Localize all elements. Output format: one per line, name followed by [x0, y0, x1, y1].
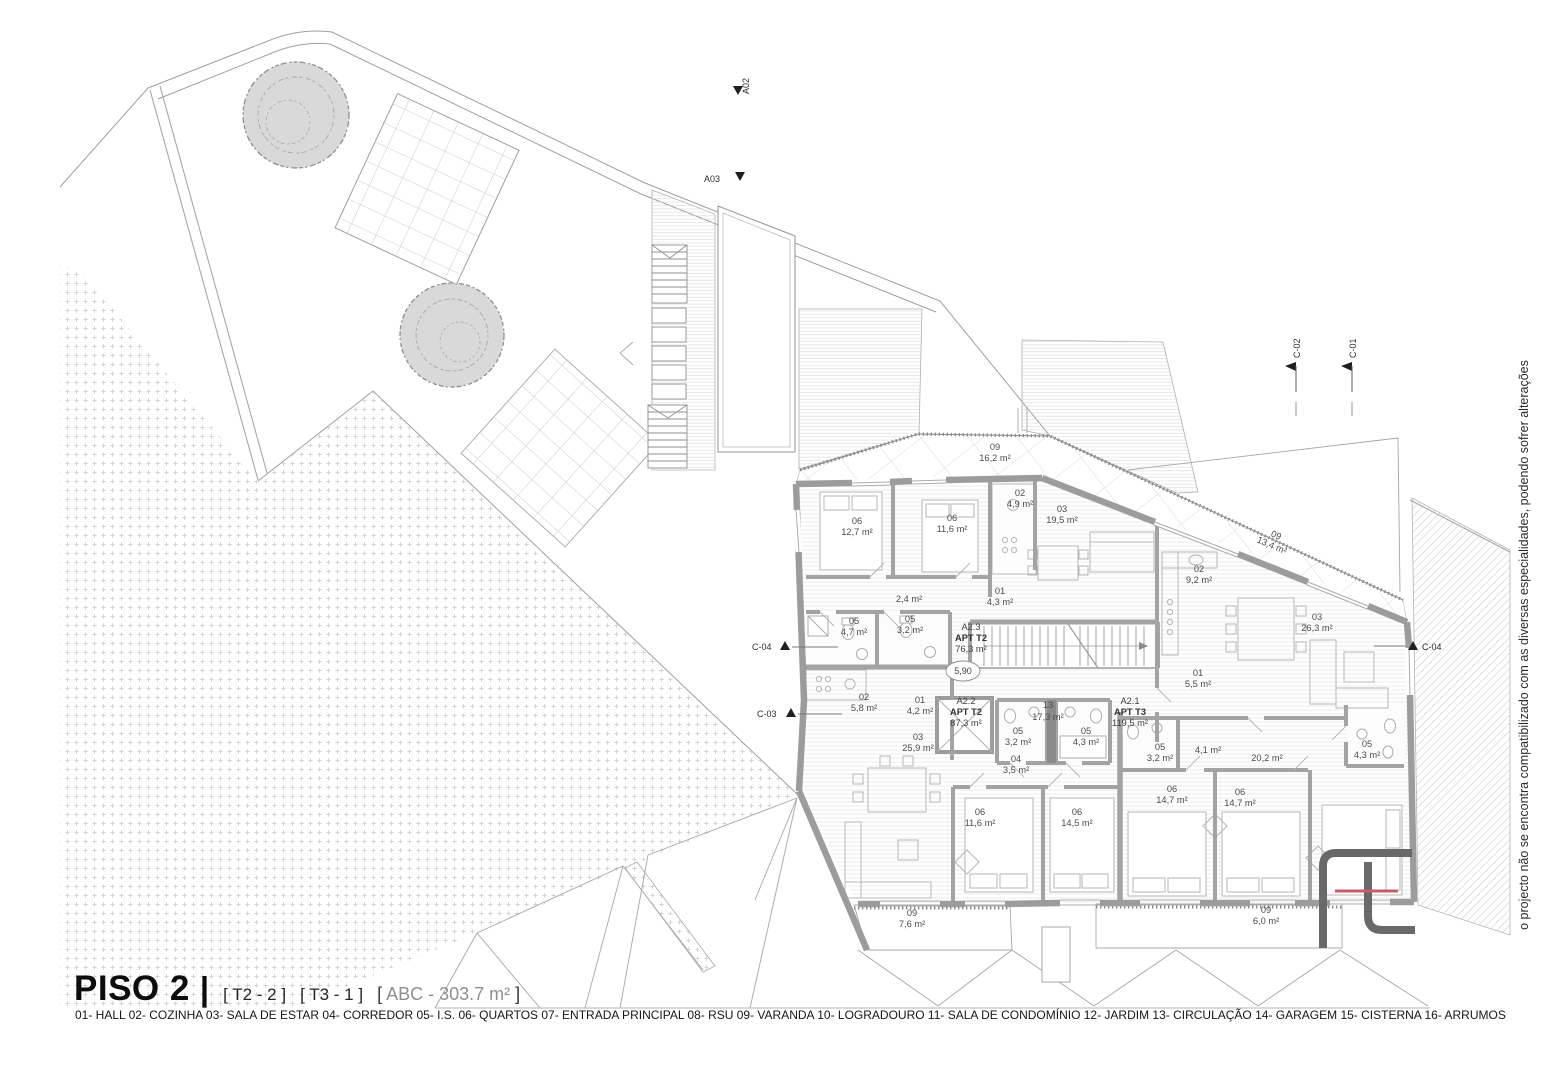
label-text: 20,2 m² — [1251, 753, 1283, 763]
label-text: 16,2 m² — [979, 453, 1011, 463]
section-marker-a03: A03 — [704, 172, 745, 184]
label-text: 87,3 m² — [950, 718, 982, 728]
label-text: 4,3 m² — [1073, 737, 1099, 747]
label-text: 14,7 m² — [1156, 795, 1188, 805]
label-text: 76,3 m² — [955, 644, 987, 654]
label-text: 09 — [990, 442, 1000, 452]
label-text: 4,3 m² — [1354, 750, 1380, 760]
label-text: 7,6 m² — [899, 919, 925, 929]
title-separator: | — [200, 970, 209, 1008]
label-text: 09 — [1261, 905, 1271, 915]
level-value: 5,90 — [954, 666, 972, 676]
room-label: 4,1 m² — [1195, 745, 1221, 755]
label-text: 06 — [1235, 787, 1245, 797]
site-staircase — [652, 245, 687, 303]
label-text: 05 — [1081, 726, 1091, 736]
label-text: 01 — [995, 586, 1005, 596]
label-text: 19,5 m² — [1046, 515, 1078, 525]
label-text: 04 — [1011, 754, 1021, 764]
marker-label: A02 — [741, 78, 751, 94]
label-text: 26,3 m² — [1301, 623, 1333, 633]
label-text: 4,1 m² — [1195, 745, 1221, 755]
label-text: 06 — [1167, 784, 1177, 794]
marker-label: A03 — [704, 174, 720, 184]
label-text: 17,3 m² — [1032, 712, 1064, 722]
label-text: 03 — [1057, 504, 1067, 514]
label-text: 06 — [975, 807, 985, 817]
label-text: 02 — [1194, 564, 1204, 574]
unit-tag-t2: [ T2 - 2 ] — [223, 985, 286, 1005]
abc-area-tag: [ ABC - 303.7 m² ] — [377, 984, 520, 1005]
section-marker-c02: C-02 — [1285, 338, 1302, 416]
label-text: 02 — [1015, 488, 1025, 498]
label-text: 03 — [1312, 612, 1322, 622]
label-text: 3,2 m² — [1147, 753, 1173, 763]
label-text: 4,2 m² — [907, 706, 933, 716]
room-label: 20,2 m² — [1251, 753, 1283, 763]
label-text: 3,2 m² — [897, 625, 923, 635]
marker-label: C-04 — [1422, 642, 1442, 652]
label-text: 09 — [907, 908, 917, 918]
label-text: 9,2 m² — [1186, 575, 1212, 585]
label-text: 01 — [1193, 668, 1203, 678]
tree-icon — [243, 62, 349, 168]
marker-label: C-02 — [1292, 338, 1302, 358]
label-text: 5,8 m² — [851, 703, 877, 713]
abc-close-bracket: ] — [515, 984, 520, 1004]
floor-plan-canvas: 5,90 A02 A03 C-02 C-01 C-04 C-03 C-04 09… — [0, 0, 1560, 1080]
label-text: APT T3 — [1114, 707, 1146, 717]
abc-open-bracket: [ — [377, 984, 382, 1004]
neighbour-volume — [718, 206, 795, 452]
label-text: 5,5 m² — [1185, 679, 1211, 689]
label-text: 2,4 m² — [896, 594, 922, 604]
disclaimer-note: o projecto não se encontra compatibiliza… — [1517, 360, 1531, 930]
page-title: PISO 2 — [74, 969, 190, 1009]
label-text: 4,3 m² — [987, 597, 1013, 607]
label-text: 25,9 m² — [902, 743, 934, 753]
abc-area-value: ABC - 303.7 m² — [386, 984, 510, 1004]
label-text: 06 — [1072, 807, 1082, 817]
label-text: 3,2 m² — [1005, 737, 1031, 747]
level-marker: 5,90 — [946, 661, 980, 681]
label-text: APT T2 — [955, 633, 987, 643]
label-text: 4,7 m² — [841, 627, 867, 637]
label-text: 12,7 m² — [841, 527, 873, 537]
label-text: A2.2 — [956, 696, 975, 706]
label-text: 14,5 m² — [1061, 818, 1093, 828]
label-text: 3,5 m² — [1003, 765, 1029, 775]
label-text: 03 — [913, 732, 923, 742]
label-text: 02 — [859, 692, 869, 702]
label-text: 01 — [915, 695, 925, 705]
marker-label: C-04 — [752, 642, 772, 652]
room-legend: 01- HALL 02- COZINHA 03- SALA DE ESTAR 0… — [75, 1008, 1495, 1022]
title-block: PISO 2 | [ T2 - 2 ] [ T3 - 1 ] [ ABC - 3… — [74, 969, 520, 1009]
site-staircase — [648, 405, 687, 468]
label-text: A2.1 — [1120, 696, 1139, 706]
neighbour-hatch-strip — [1412, 498, 1510, 935]
section-marker-a02: A02 — [733, 78, 751, 95]
label-text: 13 — [1043, 700, 1053, 710]
tree-icon — [400, 283, 504, 387]
room-label: 2,4 m² — [896, 594, 922, 604]
label-text: 119,5 m² — [1112, 718, 1148, 728]
label-text: 06 — [947, 513, 957, 523]
label-text: 4,9 m² — [1007, 499, 1033, 509]
label-text: 11,6 m² — [965, 818, 996, 828]
section-marker-c01: C-01 — [1341, 338, 1358, 416]
unit-tag-t3: [ T3 - 1 ] — [300, 985, 363, 1005]
label-text: 6,0 m² — [1253, 916, 1279, 926]
label-text: 14,7 m² — [1224, 798, 1256, 808]
label-text: 05 — [1155, 742, 1165, 752]
label-text: 05 — [1362, 739, 1372, 749]
label-text: 05 — [905, 614, 915, 624]
label-text: 05 — [1013, 726, 1023, 736]
marker-label: C-01 — [1348, 338, 1358, 358]
marker-label: C-03 — [757, 709, 777, 719]
label-text: 05 — [849, 616, 859, 626]
label-text: 11,6 m² — [937, 524, 968, 534]
label-text: APT T2 — [950, 707, 982, 717]
label-text: A2.3 — [961, 622, 980, 632]
planter-boxes — [652, 308, 686, 399]
architectural-sheet: { "sheet": { "title": "PISO 2", "separat… — [0, 0, 1560, 1080]
label-text: 06 — [852, 516, 862, 526]
